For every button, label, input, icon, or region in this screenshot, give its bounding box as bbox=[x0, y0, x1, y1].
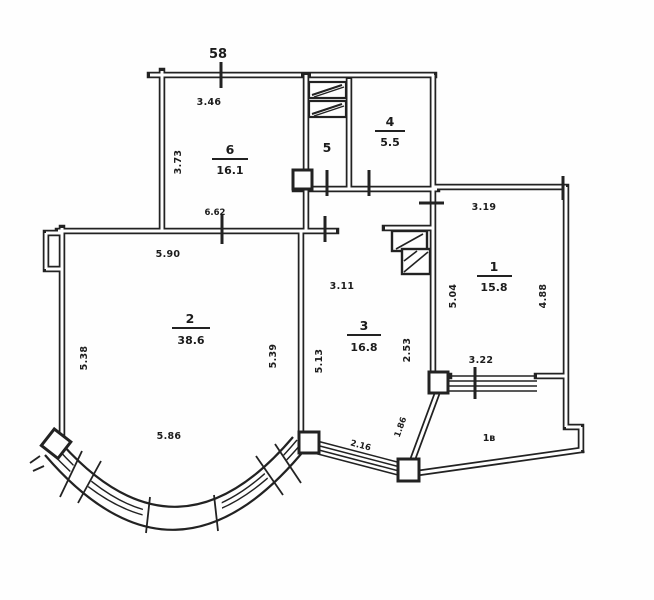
bay-end-ticks bbox=[30, 456, 44, 471]
room-1-number: 1 bbox=[490, 259, 499, 274]
dim-room3-left: 5.13 bbox=[314, 349, 325, 374]
pillar bbox=[398, 459, 419, 481]
dim-room3-right: 2.53 bbox=[402, 338, 413, 363]
room-4-area: 5.5 bbox=[380, 136, 400, 149]
room-3-area: 16.8 bbox=[350, 341, 377, 354]
bay-outer-arc bbox=[45, 448, 306, 530]
walls bbox=[46, 71, 581, 473]
vent-shaft bbox=[392, 231, 430, 274]
dim-balcony-wall: 1.86 bbox=[393, 416, 410, 439]
dim-room2-bay: 5.86 bbox=[157, 431, 182, 442]
dim-room6-left: 3.73 bbox=[173, 150, 184, 175]
room-6-area: 16.1 bbox=[216, 164, 243, 177]
dim-room3-top: 3.11 bbox=[330, 281, 355, 292]
bay-window bbox=[30, 437, 306, 533]
wall-outline bbox=[46, 71, 581, 473]
wardrobe-shelves bbox=[309, 82, 346, 117]
pillar bbox=[429, 372, 448, 393]
room-1-area: 15.8 bbox=[480, 281, 507, 294]
dim-room2-top: 5.90 bbox=[156, 249, 181, 260]
pillars bbox=[41, 170, 448, 481]
bay-pier-edges bbox=[60, 444, 301, 533]
room-2-number: 2 bbox=[186, 311, 195, 326]
room-6-number: 6 bbox=[226, 142, 235, 157]
dim-room1-left: 5.04 bbox=[448, 284, 459, 309]
balcony-window-strip bbox=[447, 376, 537, 391]
dim-room6-top: 3.46 bbox=[197, 97, 222, 108]
balcony-number: 1в bbox=[483, 433, 496, 444]
dim-room1-right: 4.88 bbox=[538, 284, 549, 309]
room-4-number: 4 bbox=[386, 114, 395, 129]
dim-balcony-window: 2.16 bbox=[349, 439, 372, 454]
room-2-area: 38.6 bbox=[177, 334, 204, 347]
pillar bbox=[293, 170, 312, 189]
floor-plan-page: 58 6 16.1 3.46 3.73 6.62 5 4 5.5 1 15.8 … bbox=[0, 0, 654, 600]
dim-room2-left: 5.38 bbox=[79, 346, 90, 371]
room-5-number: 5 bbox=[323, 140, 332, 155]
dim-room6-bottom: 6.62 bbox=[205, 208, 226, 218]
pillar bbox=[299, 432, 319, 453]
room-3-number: 3 bbox=[360, 318, 369, 333]
unit-number-label: 58 bbox=[209, 47, 227, 62]
pillar-diamond bbox=[41, 429, 70, 458]
dim-room1-bottom: 3.22 bbox=[469, 355, 494, 366]
dim-room2-right: 5.39 bbox=[268, 344, 279, 369]
dim-room1-top: 3.19 bbox=[472, 202, 497, 213]
floor-plan: 58 6 16.1 3.46 3.73 6.62 5 4 5.5 1 15.8 … bbox=[0, 0, 654, 600]
wall-core bbox=[46, 71, 581, 473]
